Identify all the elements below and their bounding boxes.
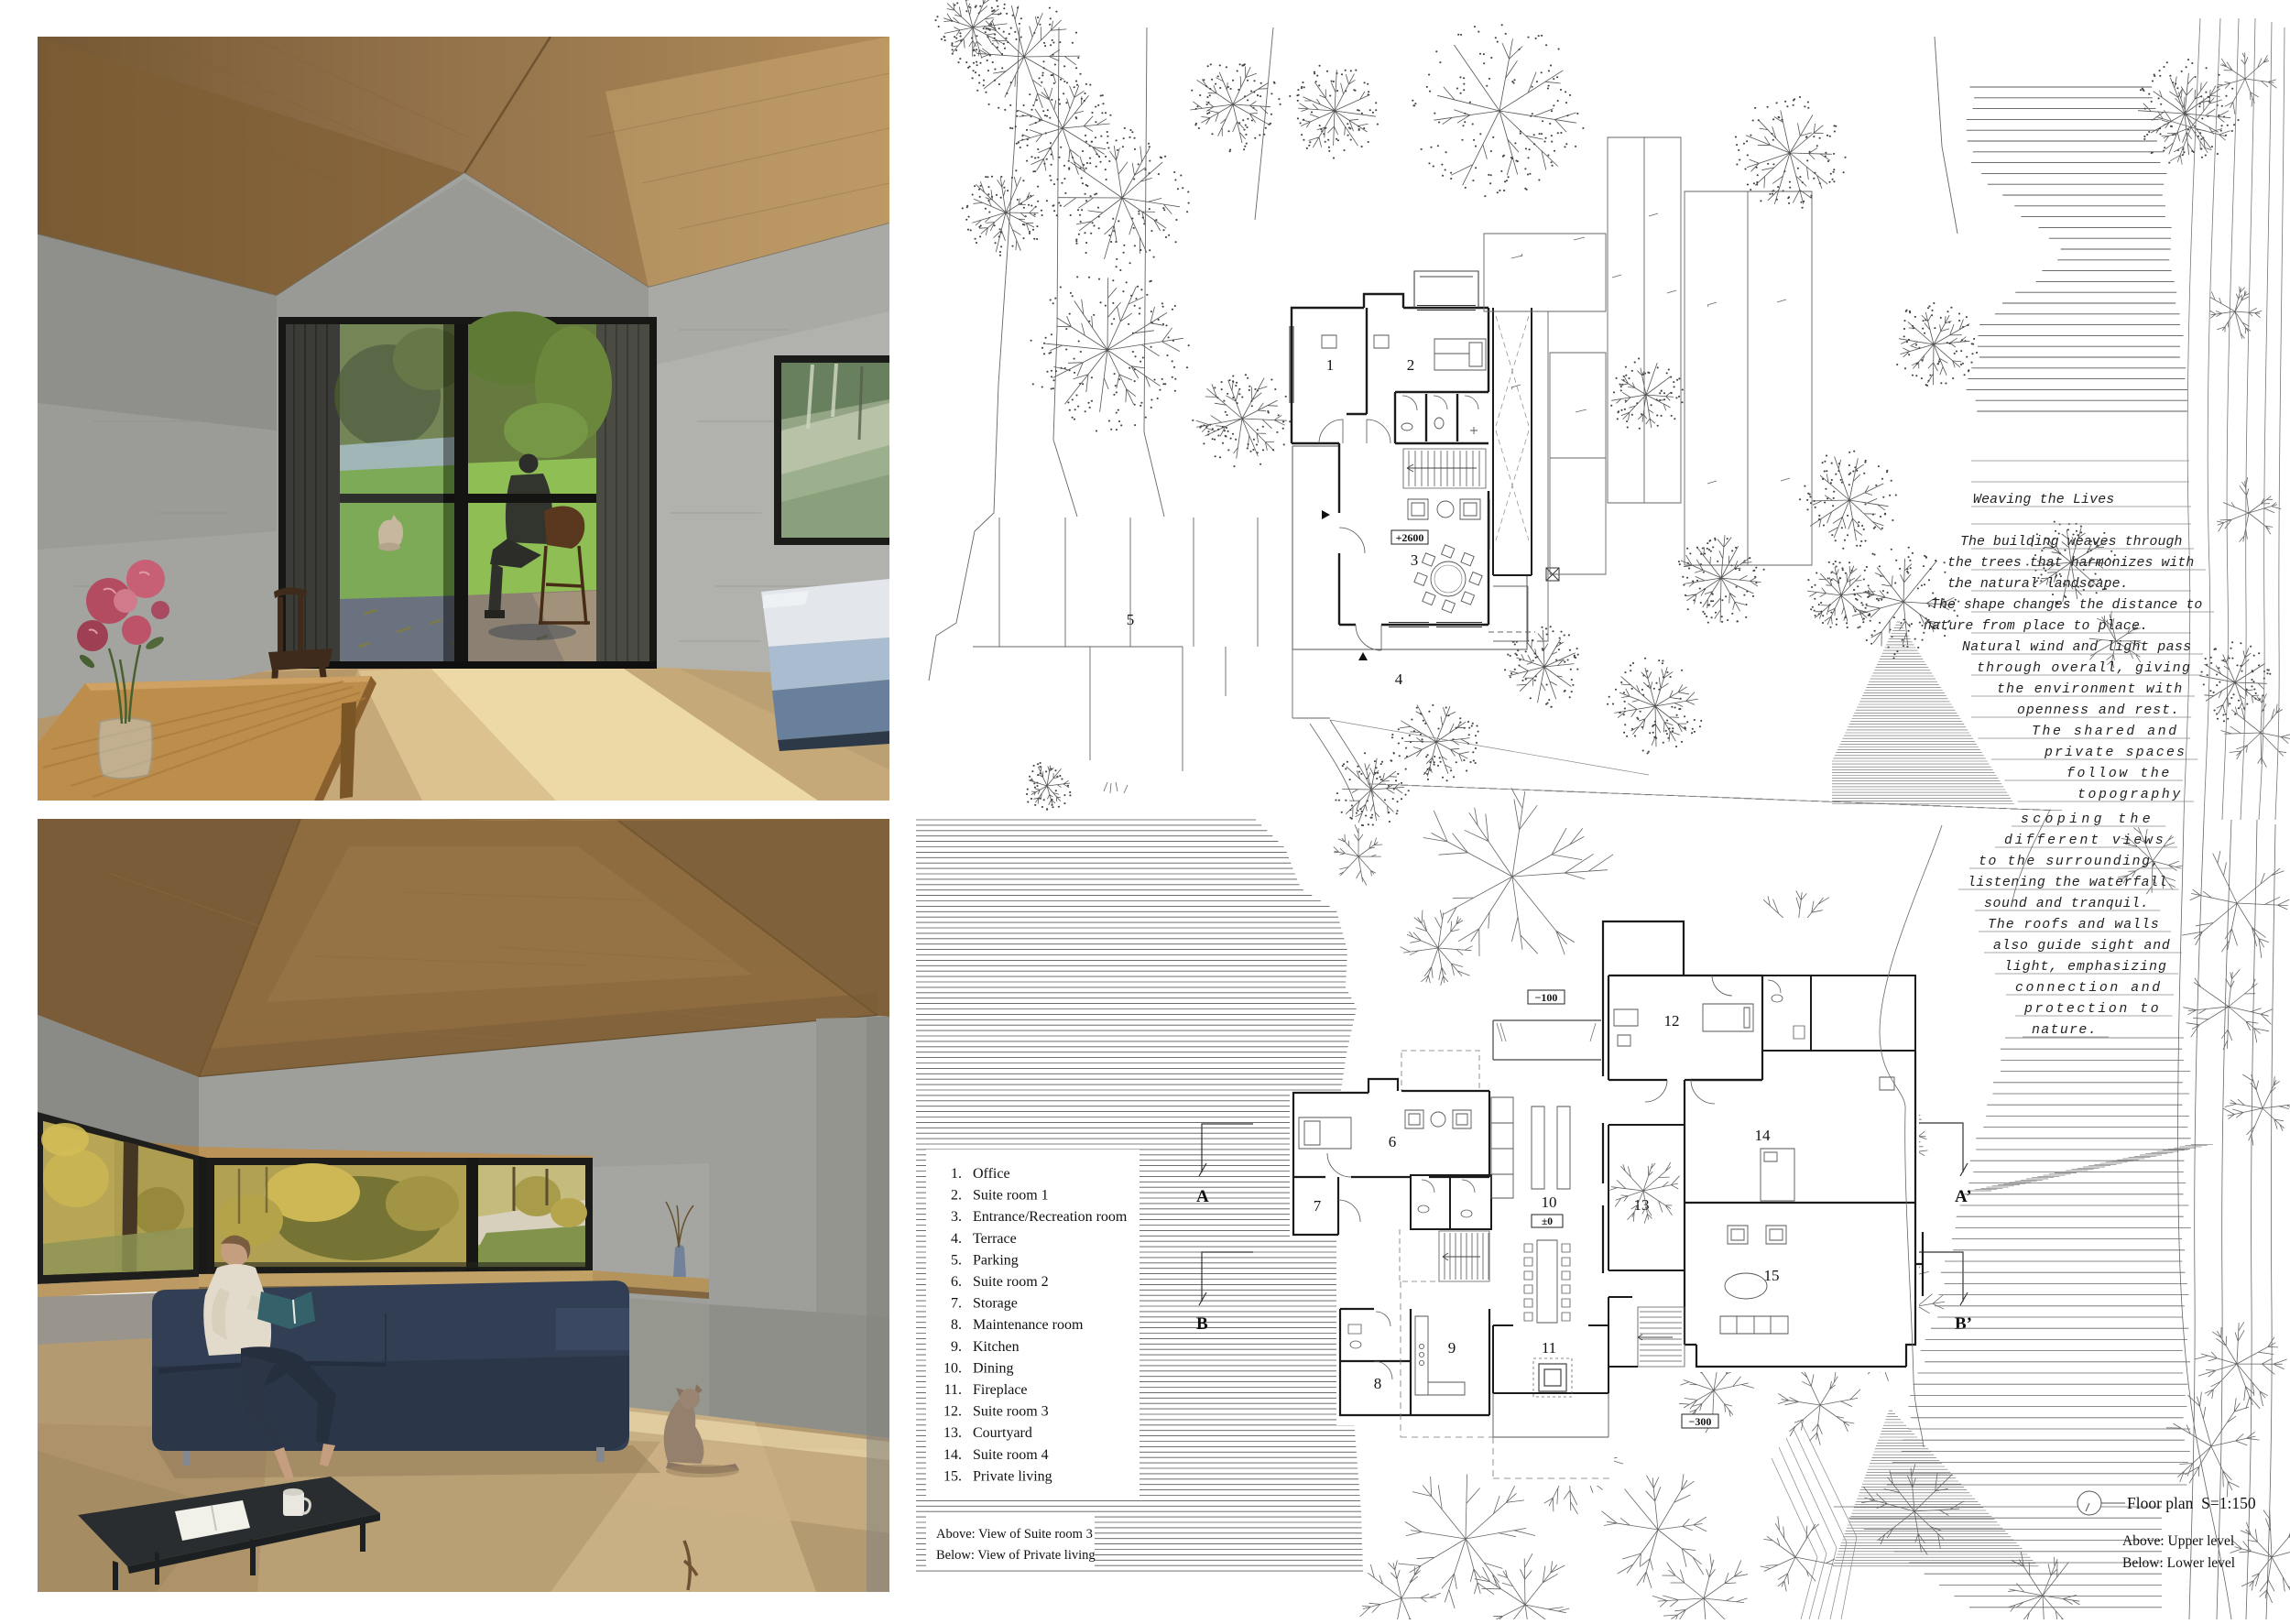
svg-text:The roofs and walls: The roofs and walls — [1988, 918, 2160, 932]
svg-text:A: A — [1196, 1187, 1209, 1206]
svg-text:Entrance/Recreation room: Entrance/Recreation room — [973, 1209, 1128, 1225]
svg-text:+2600: +2600 — [1396, 531, 1424, 544]
svg-text:4: 4 — [1395, 670, 1403, 688]
svg-text:Suite room 3: Suite room 3 — [973, 1404, 1049, 1420]
svg-text:follow the: follow the — [2066, 767, 2172, 781]
svg-text:6.: 6. — [951, 1274, 962, 1290]
svg-text:−300: −300 — [1689, 1415, 1712, 1428]
svg-text:Suite room 4: Suite room 4 — [973, 1447, 1049, 1463]
svg-text:protection to: protection to — [2023, 1002, 2161, 1017]
svg-text:5.: 5. — [951, 1252, 962, 1268]
svg-text:Above: Upper level: Above: Upper level — [2122, 1533, 2234, 1549]
svg-text:Below: Lower level: Below: Lower level — [2122, 1555, 2235, 1571]
svg-text:3.: 3. — [951, 1209, 962, 1225]
svg-text:light, emphasizing: light, emphasizing — [2004, 960, 2167, 975]
svg-text:B: B — [1196, 1314, 1208, 1334]
svg-text:private spaces: private spaces — [2044, 746, 2186, 760]
svg-text:nature.: nature. — [2032, 1023, 2098, 1038]
svg-text:Parking: Parking — [973, 1252, 1019, 1268]
svg-text:11.: 11. — [944, 1382, 962, 1398]
svg-text:8: 8 — [1374, 1375, 1382, 1392]
svg-text:12: 12 — [1664, 1012, 1680, 1030]
svg-text:−100: −100 — [1535, 991, 1558, 1004]
svg-text:the environment with: the environment with — [1997, 682, 2184, 697]
svg-text:Above: View of Suite room 3: Above: View of Suite room 3 — [936, 1527, 1093, 1542]
svg-text:the trees that harmonizes with: the trees that harmonizes with — [1947, 556, 2194, 571]
svg-text:topography: topography — [2077, 788, 2183, 802]
svg-text:scoping the: scoping the — [2021, 812, 2154, 827]
svg-text:13.: 13. — [943, 1425, 962, 1441]
svg-text:Floor plan S=1:150: Floor plan S=1:150 — [2127, 1494, 2256, 1512]
svg-text:Terrace: Terrace — [973, 1231, 1017, 1247]
svg-text:9.: 9. — [951, 1339, 962, 1355]
svg-text:7: 7 — [1314, 1197, 1322, 1215]
svg-text:15.: 15. — [943, 1468, 962, 1484]
svg-text:Below: View of Private living: Below: View of Private living — [936, 1548, 1096, 1563]
svg-text:nature from place to place.: nature from place to place. — [1924, 619, 2148, 634]
svg-text:5: 5 — [1127, 611, 1135, 628]
svg-text:Suite room 2: Suite room 2 — [973, 1274, 1049, 1290]
svg-text:Dining: Dining — [973, 1360, 1013, 1376]
svg-text:6: 6 — [1389, 1133, 1397, 1150]
svg-text:11: 11 — [1542, 1339, 1556, 1357]
svg-text:The building weaves through: The building weaves through — [1960, 535, 2182, 550]
svg-text:4.: 4. — [951, 1231, 962, 1247]
svg-text:Suite room 1: Suite room 1 — [973, 1188, 1049, 1204]
svg-text:1.: 1. — [951, 1166, 962, 1182]
svg-text:The shape changes the distance: The shape changes the distance to — [1931, 598, 2202, 613]
svg-text:Office: Office — [973, 1166, 1010, 1182]
svg-text:Kitchen: Kitchen — [973, 1339, 1020, 1355]
svg-text:2: 2 — [1407, 356, 1415, 374]
svg-text:also guide sight and: also guide sight and — [1993, 939, 2171, 954]
svg-text:2.: 2. — [951, 1188, 962, 1204]
svg-text:listening the waterfall: listening the waterfall — [1968, 876, 2167, 890]
svg-text:the natural landscape.: the natural landscape. — [1947, 577, 2129, 592]
svg-text:Private living: Private living — [973, 1468, 1052, 1484]
svg-text:12.: 12. — [943, 1404, 962, 1420]
svg-text:sound and tranquil.: sound and tranquil. — [1984, 897, 2149, 911]
svg-text:A’: A’ — [1955, 1187, 1972, 1206]
svg-text:The shared and: The shared and — [2032, 725, 2179, 739]
svg-text:10.: 10. — [943, 1360, 962, 1376]
svg-text:14: 14 — [1755, 1127, 1772, 1144]
svg-text:to the surrounding,: to the surrounding, — [1979, 855, 2161, 869]
svg-text:Fireplace: Fireplace — [973, 1382, 1028, 1398]
svg-text:Courtyard: Courtyard — [973, 1425, 1032, 1441]
svg-text:7.: 7. — [951, 1296, 962, 1312]
svg-text:8.: 8. — [951, 1317, 962, 1333]
svg-text:Storage: Storage — [973, 1296, 1018, 1312]
svg-text:different views: different views — [2004, 834, 2166, 848]
svg-text:14.: 14. — [943, 1447, 962, 1463]
svg-text:through overall, giving: through overall, giving — [1977, 661, 2191, 676]
svg-text:connection and: connection and — [2015, 981, 2163, 996]
svg-text:9: 9 — [1448, 1339, 1456, 1357]
svg-text:Maintenance room: Maintenance room — [973, 1317, 1084, 1333]
svg-text:10: 10 — [1542, 1193, 1557, 1211]
svg-text:±0: ±0 — [1542, 1216, 1553, 1227]
svg-text:openness and rest.: openness and rest. — [2017, 703, 2180, 718]
svg-text:3: 3 — [1411, 551, 1419, 569]
svg-text:15: 15 — [1764, 1267, 1780, 1284]
svg-text:Weaving the Lives: Weaving the Lives — [1973, 493, 2114, 507]
svg-text:Natural wind and light pass: Natural wind and light pass — [1962, 640, 2192, 655]
svg-text:1: 1 — [1326, 356, 1335, 374]
